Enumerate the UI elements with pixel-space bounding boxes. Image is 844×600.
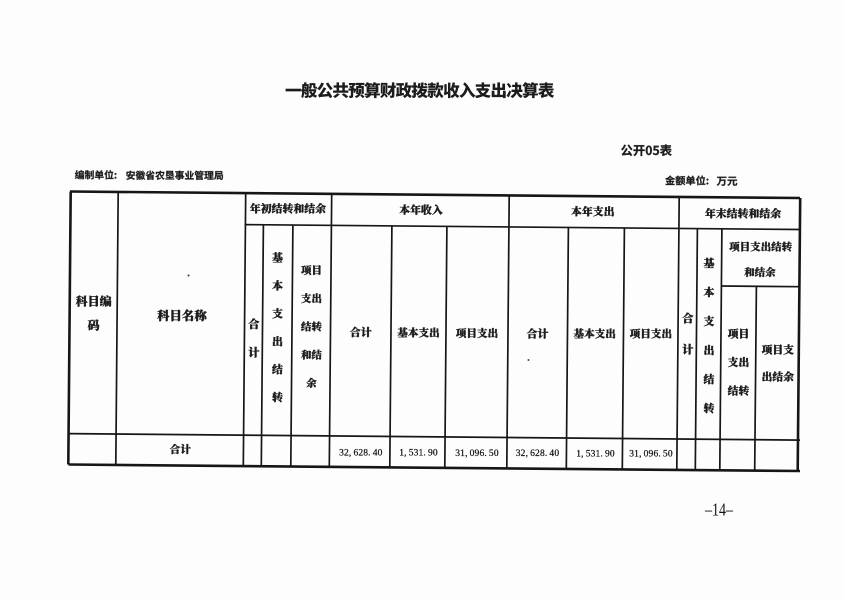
svg-text:–14–: –14–	[704, 499, 734, 519]
svg-text:1, 531. 90: 1, 531. 90	[399, 449, 438, 459]
svg-text:31, 096. 50: 31, 096. 50	[455, 449, 499, 459]
svg-text:31, 096. 50: 31, 096. 50	[629, 450, 673, 460]
svg-text:32, 628. 40: 32, 628. 40	[339, 449, 383, 459]
svg-text:32, 628. 40: 32, 628. 40	[516, 449, 560, 459]
svg-text:1, 531. 90: 1, 531. 90	[576, 449, 615, 459]
